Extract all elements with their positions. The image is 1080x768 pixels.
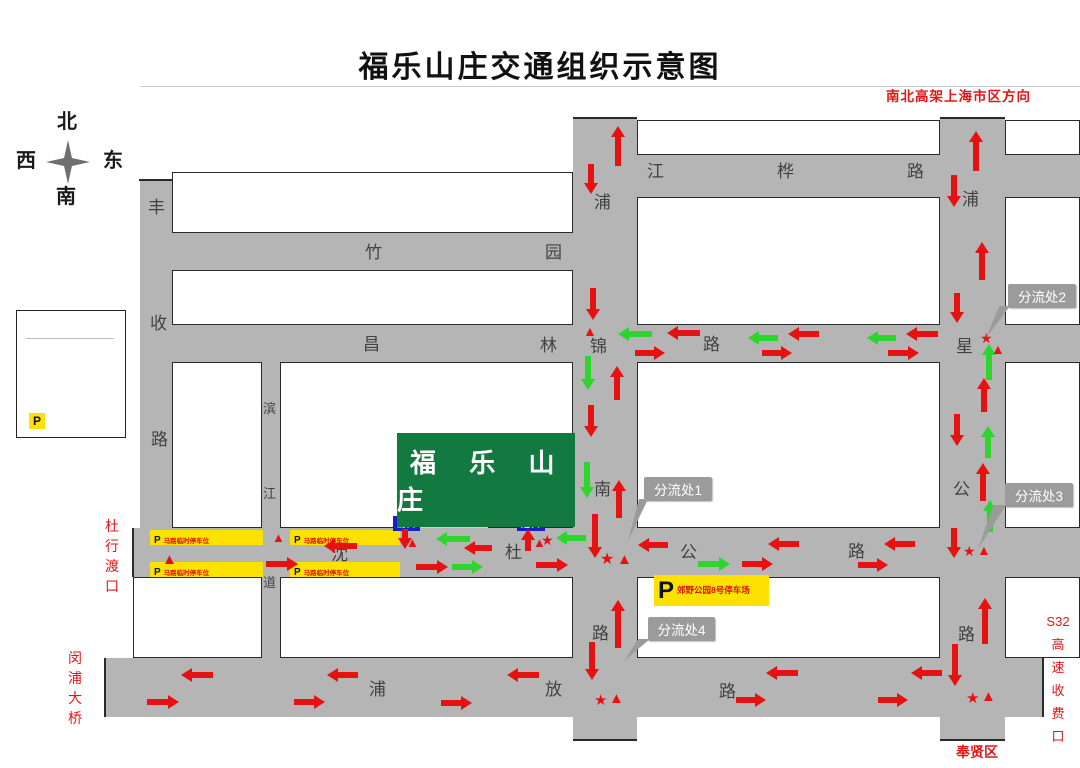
- road-name-char: 丰: [148, 199, 165, 216]
- green-route-arrow: [867, 331, 896, 345]
- road-name-char: 路: [592, 625, 609, 642]
- red-route-arrow: [441, 696, 472, 710]
- special-duty-triangle-marker: ▲: [272, 531, 285, 544]
- road-end-cap: [132, 528, 134, 577]
- road-name-char: 竹: [365, 244, 382, 261]
- road-end-cap: [573, 117, 637, 119]
- red-route-arrow: [878, 693, 908, 707]
- road-name-char: 路: [151, 431, 168, 448]
- special-duty-triangle-marker: ▲: [977, 543, 991, 557]
- green-route-arrow: [580, 462, 594, 498]
- static-label: 北: [57, 112, 77, 132]
- red-route-arrow: [584, 405, 598, 437]
- red-place-label: S32高速收费口: [1040, 610, 1076, 748]
- park8-parking-box: P郊野公园8号停车场: [654, 575, 769, 606]
- red-route-arrow: [635, 346, 665, 360]
- red-route-arrow: [975, 242, 989, 280]
- road-name-char: 锦: [590, 338, 607, 355]
- city-block: [1005, 120, 1080, 155]
- red-route-arrow: [762, 346, 792, 360]
- special-duty-triangle-marker: ▲: [162, 552, 177, 567]
- city-block: [280, 577, 573, 658]
- road-name-char: 浦: [369, 681, 386, 698]
- road-name-char: 园: [545, 244, 562, 261]
- red-route-arrow: [736, 693, 766, 707]
- red-route-arrow: [978, 598, 992, 644]
- road-name-char: 星: [956, 338, 973, 355]
- red-route-arrow: [585, 642, 599, 680]
- special-duty-triangle-marker: ▲: [991, 342, 1005, 356]
- special-duty-triangle-marker: ▲: [609, 691, 624, 706]
- road-name-char: 路: [958, 626, 975, 643]
- red-route-arrow: [976, 463, 990, 501]
- red-route-arrow: [667, 326, 700, 340]
- red-route-arrow: [536, 558, 568, 572]
- red-route-arrow: [969, 131, 983, 171]
- red-route-arrow: [147, 695, 179, 709]
- red-route-arrow: [884, 537, 915, 551]
- road-name-char: 浦: [962, 191, 979, 208]
- road-end-cap: [104, 658, 106, 717]
- red-route-arrow: [638, 538, 668, 552]
- police-star-marker: ★: [594, 693, 607, 708]
- static-label: 西: [16, 151, 36, 171]
- green-route-arrow: [618, 327, 652, 341]
- road-name-char: 路: [719, 683, 736, 700]
- green-route-arrow: [698, 557, 730, 571]
- roadside-parking-strip: P马路临时停车位: [150, 530, 263, 545]
- red-route-arrow: [788, 327, 819, 341]
- red-route-arrow: [947, 528, 961, 558]
- city-block: [172, 270, 573, 325]
- title-underline: [140, 86, 1080, 87]
- road-name-char: 江: [263, 487, 276, 500]
- road-name-char: 滨: [263, 402, 276, 415]
- red-place-label: 闵浦大桥: [68, 648, 82, 728]
- green-route-arrow: [581, 356, 595, 390]
- road-name-char: 公: [953, 481, 970, 498]
- red-place-label: 杜行渡口: [105, 516, 119, 596]
- road-name-char: 路: [907, 163, 924, 180]
- special-duty-triangle-marker: ▲: [406, 536, 419, 549]
- green-route-arrow: [452, 560, 483, 574]
- road-name-char: 江: [647, 163, 664, 180]
- red-route-arrow: [858, 558, 888, 572]
- red-route-arrow: [766, 666, 798, 680]
- diversion-callout: 分流处4: [648, 617, 715, 641]
- green-route-arrow: [981, 426, 995, 458]
- red-route-arrow: [950, 293, 964, 323]
- special-duty-triangle-marker: ▲: [981, 689, 996, 704]
- red-route-arrow: [888, 346, 919, 360]
- road-name-char: 公: [680, 544, 697, 561]
- special-duty-triangle-marker: ▲: [533, 536, 546, 549]
- red-route-arrow: [586, 288, 600, 320]
- red-route-arrow: [911, 666, 942, 680]
- red-route-arrow: [947, 175, 961, 207]
- diversion-callout: 分流处2: [1008, 284, 1076, 308]
- red-route-arrow: [768, 537, 799, 551]
- red-route-arrow: [611, 126, 625, 166]
- police-star-marker: ★: [963, 544, 976, 558]
- page-title: 福乐山庄交通组织示意图: [0, 42, 1080, 86]
- red-route-arrow: [611, 600, 625, 648]
- site-name: 福 乐 山 庄: [397, 443, 575, 517]
- red-route-arrow: [181, 668, 213, 682]
- road-name-char: 南: [594, 481, 611, 498]
- road-name-char: 桦: [777, 163, 794, 180]
- police-star-marker: ★: [600, 552, 614, 568]
- green-route-arrow: [556, 531, 586, 545]
- city-block: [637, 362, 940, 528]
- road-end-cap: [940, 117, 1005, 119]
- red-route-arrow: [610, 366, 624, 400]
- city-block: [172, 172, 573, 233]
- red-route-arrow: [416, 560, 448, 574]
- road-name-char: 路: [703, 336, 720, 353]
- red-place-label: 南北高架上海市区方向: [886, 90, 1031, 104]
- road-name-char: 杜: [505, 544, 522, 561]
- compass-star-icon: [46, 140, 90, 184]
- road-end-cap: [940, 739, 1005, 741]
- red-route-arrow: [584, 164, 598, 194]
- red-route-arrow: [742, 557, 773, 571]
- red-route-arrow: [906, 327, 938, 341]
- static-label: 南: [56, 187, 76, 207]
- road-name-char: 道: [263, 576, 276, 589]
- city-block: [637, 120, 940, 155]
- parking-icon: P: [29, 413, 45, 429]
- red-route-arrow: [464, 541, 492, 555]
- city-block: [637, 197, 940, 325]
- police-star-marker: ★: [966, 691, 979, 706]
- red-route-arrow: [507, 668, 539, 682]
- road-name-char: 浦: [594, 194, 611, 211]
- static-label: 东: [103, 151, 123, 171]
- diversion-callout: 分流处1: [644, 477, 712, 501]
- red-route-arrow: [266, 557, 298, 571]
- city-block: [133, 577, 262, 658]
- diversion-callout: 分流处3: [1005, 483, 1073, 507]
- road-zhuyuan-rd: [140, 233, 637, 270]
- road-end-cap: [139, 179, 173, 181]
- red-route-arrow: [948, 644, 962, 686]
- road-pufang-rd: [105, 658, 1043, 717]
- red-place-label: 奉贤区: [956, 745, 998, 759]
- road-name-char: 昌: [363, 336, 380, 353]
- red-route-arrow: [327, 668, 358, 682]
- road-changlin-rd: [140, 325, 1080, 362]
- special-duty-triangle-marker: ▲: [617, 552, 632, 567]
- red-route-arrow: [950, 414, 964, 446]
- red-route-arrow: [294, 695, 325, 709]
- legend-divider: [26, 338, 114, 339]
- special-duty-triangle-marker: ▲: [583, 324, 597, 338]
- green-route-arrow: [748, 331, 778, 345]
- red-route-arrow: [324, 539, 357, 553]
- road-end-cap: [573, 739, 637, 741]
- traffic-diagram: 福乐山庄交通组织示意图 江桦路竹园昌林路沈杜公路浦放路丰收路滨江道浦锦南路浦星公…: [0, 0, 1080, 768]
- fule-shanzhuang-site: 福 乐 山 庄: [397, 433, 575, 527]
- road-name-char: 放: [545, 681, 562, 698]
- road-name-char: 林: [540, 337, 557, 354]
- red-route-arrow: [612, 480, 626, 518]
- road-name-char: 收: [150, 315, 167, 332]
- city-block: [172, 362, 262, 528]
- roadside-parking-strip: P马路临时停车位: [290, 562, 400, 577]
- red-route-arrow: [977, 378, 991, 412]
